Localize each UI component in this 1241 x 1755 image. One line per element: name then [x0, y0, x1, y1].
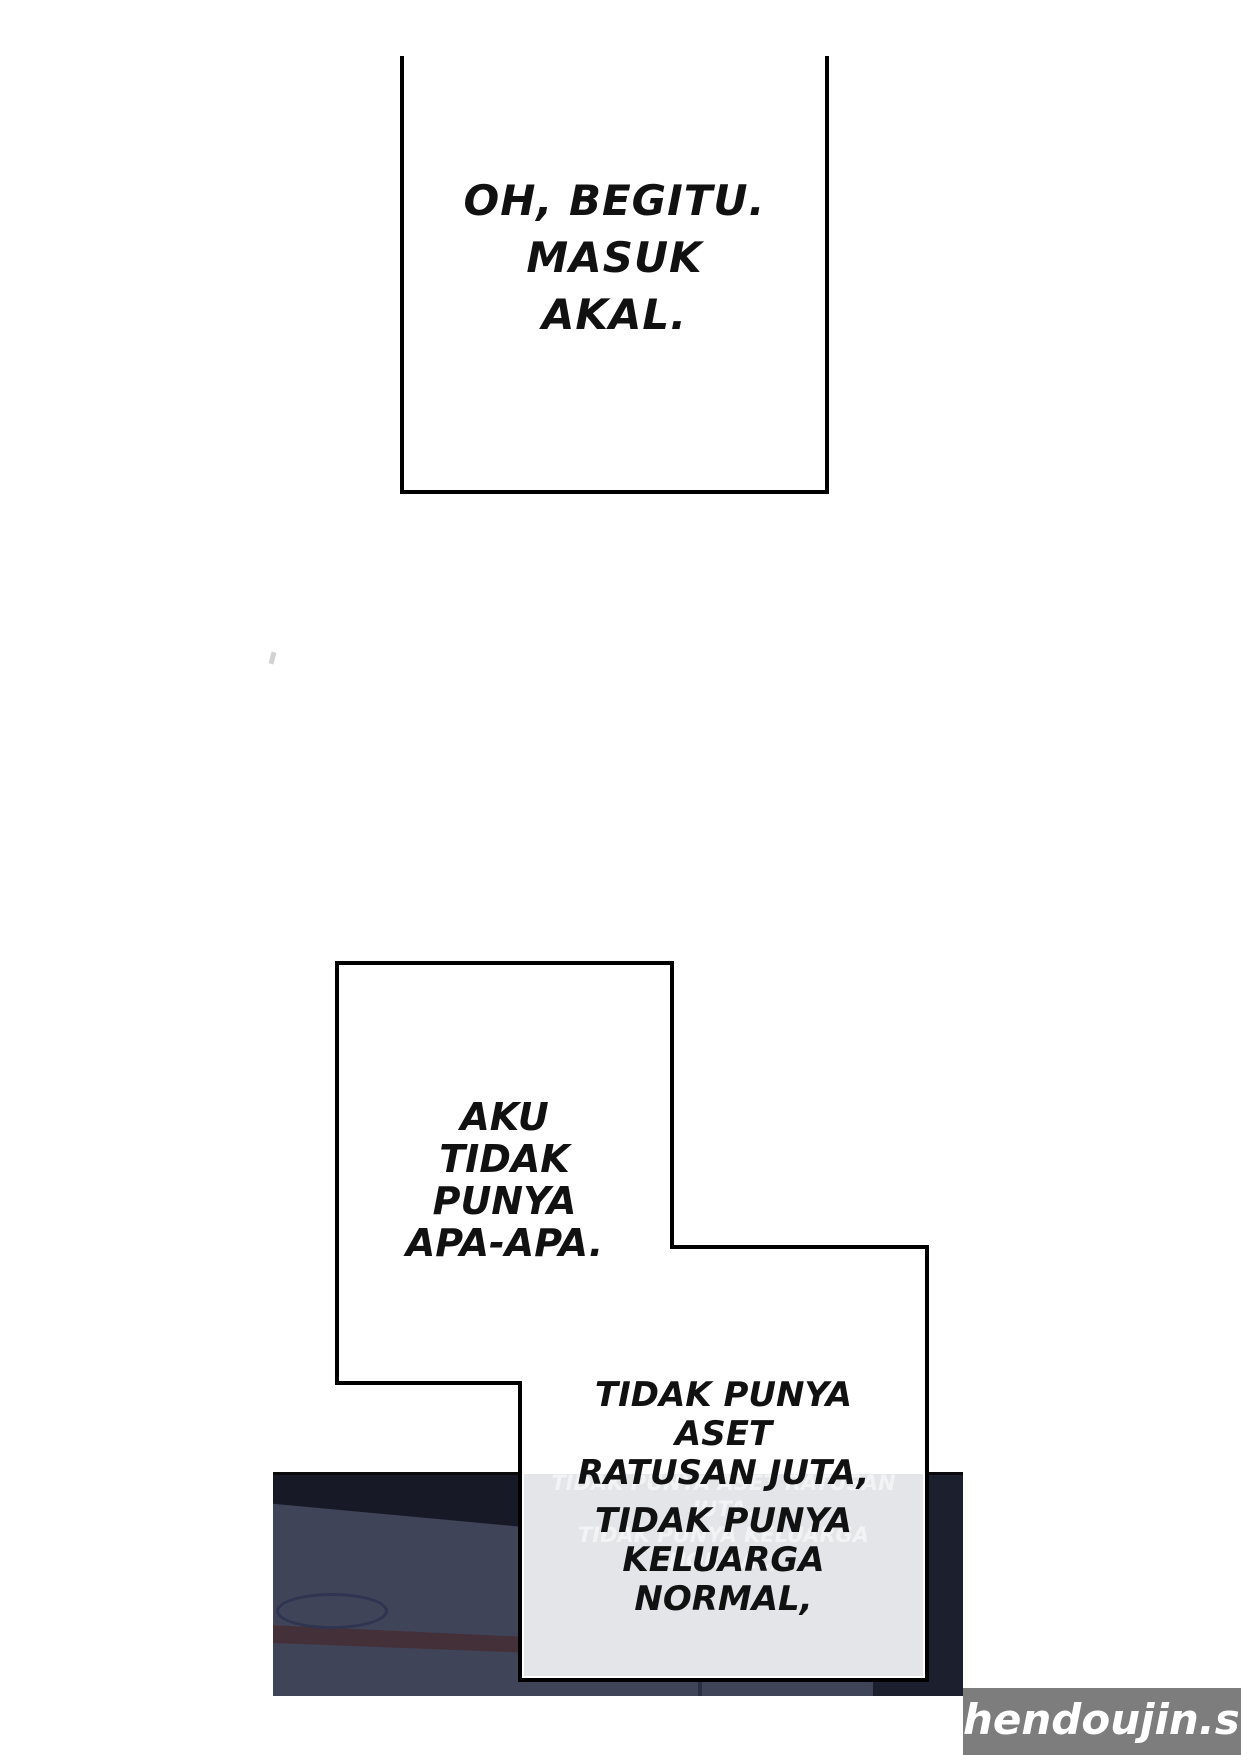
speech-line: APA-APA.	[337, 1222, 672, 1264]
speech-text-top: OH, BEGITU. MASUK AKAL.	[400, 172, 829, 343]
speech-line: AKU	[337, 1096, 672, 1138]
watermark-badge: hendoujin.site	[963, 1688, 1241, 1755]
speech-line: TIDAK PUNYA	[520, 1376, 927, 1415]
speech-text-middle: AKU TIDAK PUNYA APA-APA.	[337, 1096, 672, 1264]
speech-line: TIDAK PUNYA	[520, 1502, 927, 1541]
speech-line: ASET	[520, 1415, 927, 1454]
speech-line: PUNYA	[337, 1180, 672, 1222]
speech-text-bottom: TIDAK PUNYA ASET RATUSAN JUTA, TIDAK PUN…	[520, 1376, 927, 1619]
speech-line: KELUARGA	[520, 1541, 927, 1580]
speech-line: MASUK	[400, 229, 829, 286]
speech-line: AKAL.	[400, 286, 829, 343]
speech-line: NORMAL,	[520, 1580, 927, 1619]
speech-line: OH, BEGITU.	[400, 172, 829, 229]
speech-line: TIDAK	[337, 1138, 672, 1180]
stray-ink-mark	[269, 652, 277, 665]
watermark-text: hendoujin.site	[963, 1695, 1241, 1744]
speech-line: RATUSAN JUTA,	[520, 1454, 927, 1493]
comic-page: { "comic": { "panel1": { "lines": ["OH, …	[0, 0, 1241, 1755]
